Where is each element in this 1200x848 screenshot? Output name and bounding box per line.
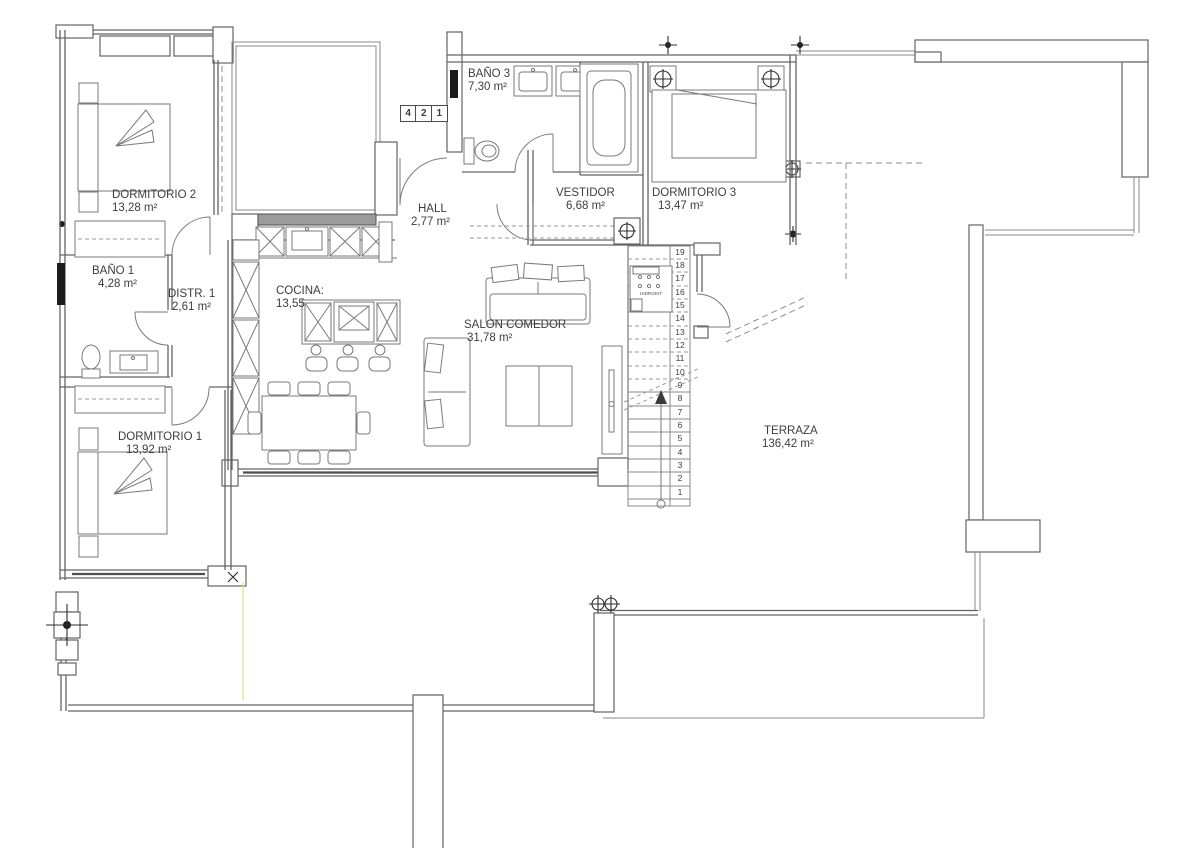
- label-bano3: BAÑO 3 7,30 m²: [468, 68, 510, 94]
- stair-step-number: 19: [671, 247, 689, 257]
- unit-badge-digit: 1: [431, 105, 448, 122]
- stair-step-number: 5: [671, 433, 689, 443]
- stair-step-number: 1: [671, 487, 689, 497]
- sofa-left: [424, 338, 470, 446]
- unit-badge-digit: 4: [400, 105, 417, 122]
- unit-badge: 4 2 1: [401, 105, 448, 122]
- hidrokit-label: HIDROKIT: [630, 291, 672, 296]
- hidrokit-box: [630, 266, 672, 312]
- overhang-dashed-lines: [726, 163, 926, 342]
- stair-step-number: 16: [671, 287, 689, 297]
- stair-step-number: 4: [671, 447, 689, 457]
- label-salon: SALON COMEDOR 31,78 m²: [464, 319, 566, 345]
- unit-badge-digit: 2: [415, 105, 432, 122]
- floorplan-linework: [0, 0, 1200, 848]
- wardrobe-dormitorio2: [75, 221, 165, 257]
- tv-unit: [602, 346, 622, 454]
- stair-step-number: 8: [671, 393, 689, 403]
- room-area: 13,28 m²: [112, 202, 196, 215]
- label-dormitorio1: DORMITORIO 1 13,92 m²: [118, 431, 202, 457]
- stair-step-number: 9: [671, 380, 689, 390]
- wardrobe-dormitorio1: [75, 386, 165, 413]
- label-bano1: BAÑO 1 4,28 m²: [92, 265, 137, 291]
- stair-step-number: 14: [671, 313, 689, 323]
- stair-step-number: 10: [671, 367, 689, 377]
- stair-step-number: 15: [671, 300, 689, 310]
- stair-step-number: 2: [671, 473, 689, 483]
- stair-step-number: 11: [671, 353, 689, 363]
- stair-step-number: 6: [671, 420, 689, 430]
- stair-step-number: 3: [671, 460, 689, 470]
- stair-step-number: 13: [671, 327, 689, 337]
- dining-table: [248, 382, 370, 464]
- label-dormitorio2: DORMITORIO 2 13,28 m²: [112, 189, 196, 215]
- bed-dormitorio3: [650, 66, 786, 182]
- label-distribuidor: DISTR. 1 2,61 m²: [168, 288, 215, 314]
- bathroom1-fixtures: [82, 345, 158, 378]
- label-vestidor: VESTIDOR 6,68 m²: [556, 187, 615, 213]
- label-terraza: TERRAZA 136,42 m²: [762, 425, 818, 451]
- label-dormitorio3: DORMITORIO 3 13,47 m²: [652, 187, 736, 213]
- floor-plan: DORMITORIO 2 13,28 m² BAÑO 1 4,28 m² DIS…: [0, 0, 1200, 848]
- stair-step-number: 7: [671, 407, 689, 417]
- sofa-top: [486, 263, 590, 324]
- stair-step-number: 12: [671, 340, 689, 350]
- coffee-table: [506, 366, 572, 426]
- room-name: DORMITORIO 2: [112, 189, 196, 202]
- stair-step-number: 18: [671, 260, 689, 270]
- bathtub: [580, 64, 638, 172]
- label-hall: HALL 2,77 m²: [411, 203, 450, 229]
- label-cocina: COCINA: 13,55: [276, 285, 324, 311]
- stair-step-number: 17: [671, 273, 689, 283]
